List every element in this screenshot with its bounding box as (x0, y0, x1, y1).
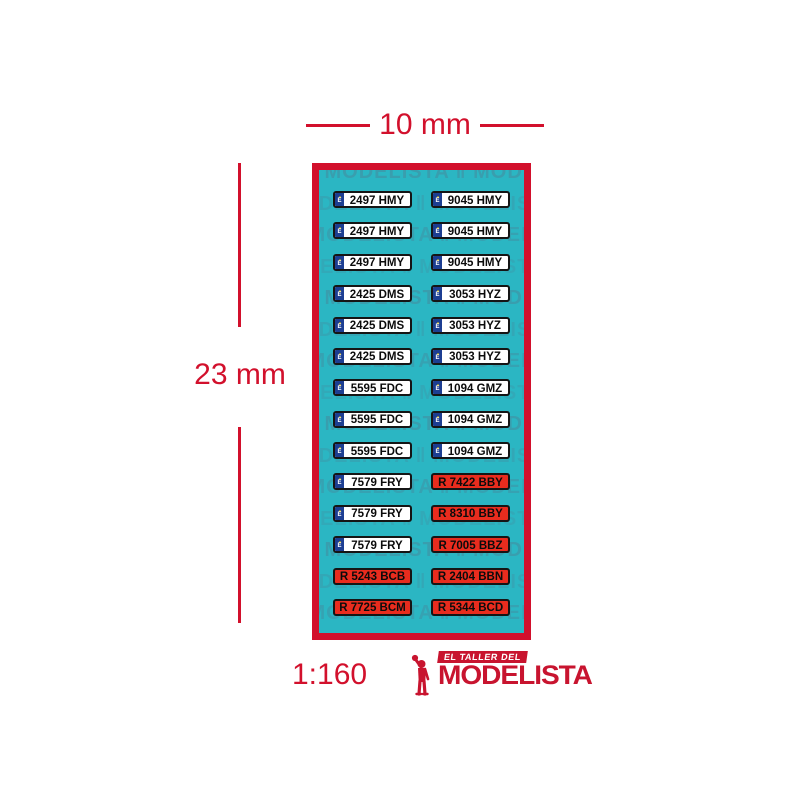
eu-band: •••E (335, 350, 344, 363)
plate-number: 1094 GMZ (443, 381, 506, 394)
plate-number: 2497 HMY (345, 256, 408, 269)
license-plate-decal: •••E3053 HYZ (431, 285, 510, 302)
eu-country-letter: E (337, 512, 341, 518)
plate-number: 7579 FRY (345, 538, 408, 551)
decal-sheet: ‖ MODELISTA ‖ MODELISTA ‖‖ MODELISTA ‖ M… (312, 163, 531, 640)
plate-number: 7579 FRY (345, 475, 408, 488)
width-dimension: 10 mm (306, 104, 544, 146)
eu-country-letter: E (337, 449, 341, 455)
height-dimension-line-top (238, 163, 241, 327)
license-plate-decal: •••E9045 HMY (431, 254, 510, 271)
eu-country-letter: E (435, 324, 439, 330)
plate-number: 5595 FDC (345, 444, 408, 457)
eu-country-letter: E (337, 229, 341, 235)
eu-country-letter: E (337, 198, 341, 204)
license-plate-decal: R 8310 BBY (431, 505, 510, 522)
eu-country-letter: E (337, 261, 341, 267)
plate-row: •••E7579 FRYR 8310 BBY (319, 505, 524, 522)
license-plate-decal: •••E7579 FRY (333, 473, 412, 490)
plate-number: 9045 HMY (443, 256, 506, 269)
eu-country-letter: E (337, 324, 341, 330)
plate-number: 9045 HMY (443, 193, 506, 206)
logo-name: MODELISTA (438, 664, 592, 687)
plate-number: 5595 FDC (345, 381, 408, 394)
eu-country-letter: E (435, 355, 439, 361)
plate-number: 1094 GMZ (443, 444, 506, 457)
license-plate-decal: •••E9045 HMY (431, 191, 510, 208)
dimension-line-left (306, 124, 370, 127)
height-dimension-label: 23 mm (178, 360, 302, 390)
eu-country-letter: E (435, 198, 439, 204)
plate-row: •••E2425 DMS•••E3053 HYZ (319, 317, 524, 334)
license-plate-decal: •••E2425 DMS (333, 285, 412, 302)
eu-band: •••E (335, 256, 344, 269)
dimension-line-right (480, 124, 544, 127)
eu-band: •••E (335, 224, 344, 237)
product-image: 10 mm 23 mm ‖ MODELISTA ‖ MODELISTA ‖‖ M… (0, 0, 800, 800)
license-plate-decal: •••E1094 GMZ (431, 379, 510, 396)
width-dimension-label: 10 mm (379, 110, 471, 140)
license-plate-decal: R 5344 BCD (431, 599, 510, 616)
plate-number: R 2404 BBN (435, 570, 507, 583)
plate-number: 3053 HYZ (443, 350, 506, 363)
eu-band: •••E (335, 319, 344, 332)
license-plate-decal: R 2404 BBN (431, 568, 510, 585)
plate-number: 9045 HMY (443, 224, 506, 237)
plate-number: 7579 FRY (345, 507, 408, 520)
license-plate-decal: R 7005 BBZ (431, 536, 510, 553)
license-plate-decal: •••E3053 HYZ (431, 317, 510, 334)
plate-row: •••E2425 DMS•••E3053 HYZ (319, 285, 524, 302)
eu-country-letter: E (435, 386, 439, 392)
license-plate-decal: R 5243 BCB (333, 568, 412, 585)
plate-number: 2497 HMY (345, 193, 408, 206)
license-plate-decal: •••E5595 FDC (333, 379, 412, 396)
plate-row: •••E5595 FDC•••E1094 GMZ (319, 442, 524, 459)
eu-band: •••E (335, 287, 344, 300)
eu-country-letter: E (435, 449, 439, 455)
eu-band: •••E (335, 538, 344, 551)
license-plate-decal: •••E3053 HYZ (431, 348, 510, 365)
plate-number: 2425 DMS (345, 350, 408, 363)
eu-band: •••E (335, 381, 344, 394)
license-plate-decal: •••E9045 HMY (431, 222, 510, 239)
plate-number: R 8310 BBY (435, 507, 507, 520)
plate-row: R 7725 BCMR 5344 BCD (319, 599, 524, 616)
license-plate-decal: •••E1094 GMZ (431, 411, 510, 428)
eu-band: •••E (433, 287, 442, 300)
license-plate-decal: •••E2425 DMS (333, 317, 412, 334)
plate-row: •••E5595 FDC•••E1094 GMZ (319, 411, 524, 428)
logo-text: EL TALLER DEL MODELISTA (438, 651, 586, 687)
scale-label: 1:160 (292, 660, 367, 690)
plate-row: •••E7579 FRYR 7005 BBZ (319, 536, 524, 553)
plate-row: •••E2497 HMY•••E9045 HMY (319, 254, 524, 271)
plate-row: •••E2497 HMY•••E9045 HMY (319, 191, 524, 208)
eu-band: •••E (335, 507, 344, 520)
license-plate-decal: •••E2497 HMY (333, 254, 412, 271)
plate-number: 1094 GMZ (443, 413, 506, 426)
license-plate-decal: •••E7579 FRY (333, 536, 412, 553)
eu-country-letter: E (435, 292, 439, 298)
eu-band: •••E (335, 444, 344, 457)
eu-band: •••E (433, 413, 442, 426)
eu-band: •••E (433, 350, 442, 363)
eu-country-letter: E (337, 418, 341, 424)
plate-number: 3053 HYZ (443, 319, 506, 332)
license-plate-decal: •••E2497 HMY (333, 191, 412, 208)
plate-number: R 7005 BBZ (435, 538, 507, 551)
plate-number: R 7725 BCM (337, 601, 409, 614)
height-dimension-line-bottom (238, 427, 241, 623)
license-plate-decal: •••E5595 FDC (333, 442, 412, 459)
plate-row: •••E5595 FDC•••E1094 GMZ (319, 379, 524, 396)
eu-band: •••E (433, 319, 442, 332)
eu-country-letter: E (337, 543, 341, 549)
eu-country-letter: E (337, 480, 341, 486)
plate-number: 3053 HYZ (443, 287, 506, 300)
plate-number: R 5344 BCD (435, 601, 507, 614)
license-plate-decal: •••E1094 GMZ (431, 442, 510, 459)
eu-band: •••E (433, 193, 442, 206)
eu-country-letter: E (337, 355, 341, 361)
eu-band: •••E (335, 475, 344, 488)
plate-number: R 7422 BBY (435, 475, 507, 488)
plate-number: 2497 HMY (345, 224, 408, 237)
plate-row: •••E2497 HMY•••E9045 HMY (319, 222, 524, 239)
brand-logo: EL TALLER DEL MODELISTA (409, 651, 586, 697)
modelista-figure-icon (409, 653, 436, 697)
license-plate-decal: •••E2425 DMS (333, 348, 412, 365)
plates-grid: •••E2497 HMY•••E9045 HMY•••E2497 HMY•••E… (319, 170, 524, 633)
eu-band: •••E (335, 413, 344, 426)
plate-row: R 5243 BCBR 2404 BBN (319, 568, 524, 585)
eu-band: •••E (433, 381, 442, 394)
plate-number: 5595 FDC (345, 413, 408, 426)
eu-country-letter: E (337, 292, 341, 298)
license-plate-decal: •••E7579 FRY (333, 505, 412, 522)
plate-row: •••E7579 FRYR 7422 BBY (319, 473, 524, 490)
eu-band: •••E (433, 256, 442, 269)
plate-number: 2425 DMS (345, 319, 408, 332)
eu-country-letter: E (435, 261, 439, 267)
eu-band: •••E (433, 444, 442, 457)
eu-country-letter: E (435, 229, 439, 235)
license-plate-decal: R 7422 BBY (431, 473, 510, 490)
eu-country-letter: E (435, 418, 439, 424)
plate-number: R 5243 BCB (337, 570, 409, 583)
plate-row: •••E2425 DMS•••E3053 HYZ (319, 348, 524, 365)
license-plate-decal: R 7725 BCM (333, 599, 412, 616)
license-plate-decal: •••E5595 FDC (333, 411, 412, 428)
eu-band: •••E (433, 224, 442, 237)
license-plate-decal: •••E2497 HMY (333, 222, 412, 239)
eu-country-letter: E (337, 386, 341, 392)
eu-band: •••E (335, 193, 344, 206)
plate-number: 2425 DMS (345, 287, 408, 300)
